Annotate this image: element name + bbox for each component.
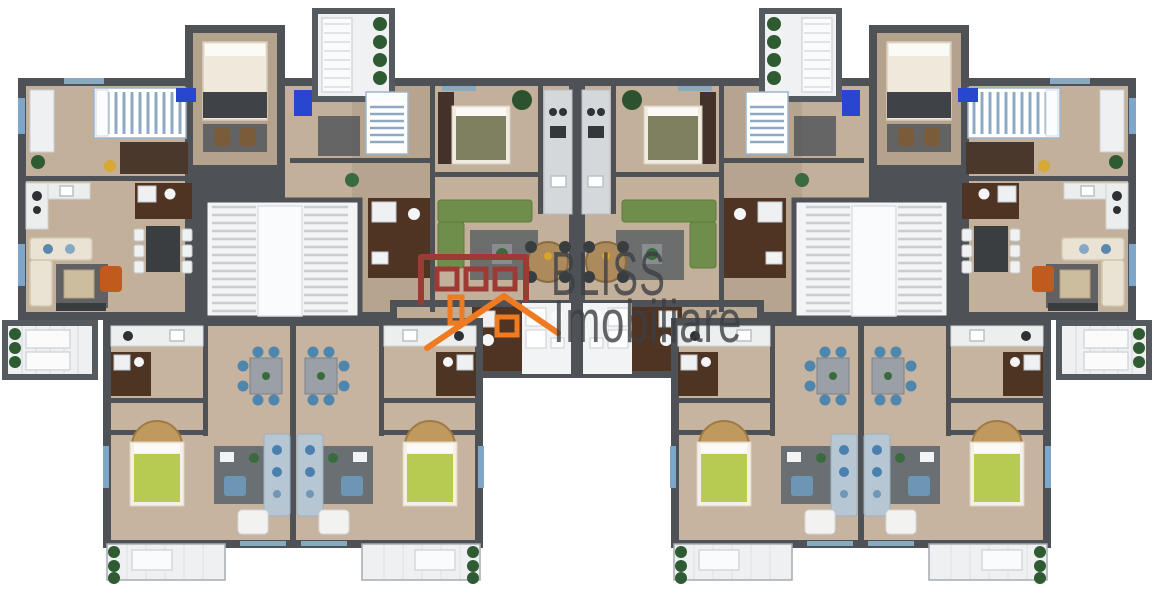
kitchen-sink bbox=[403, 330, 417, 341]
cooktop bbox=[454, 331, 464, 341]
kitchen-sink bbox=[551, 176, 566, 187]
wall-lower-h bbox=[678, 398, 770, 403]
dining-chair-blue bbox=[269, 395, 280, 406]
plant bbox=[675, 546, 687, 558]
bed-blanket-dark bbox=[203, 92, 267, 118]
window-glass bbox=[678, 86, 712, 91]
sofa-pillow bbox=[872, 445, 882, 455]
stool-yellow bbox=[104, 160, 116, 172]
plant bbox=[373, 71, 387, 85]
dining-chair-blue bbox=[269, 347, 280, 358]
armchair-white bbox=[319, 510, 349, 534]
toilet bbox=[482, 334, 494, 346]
stool-yellow bbox=[1038, 160, 1050, 172]
chair-blue bbox=[791, 476, 813, 496]
bed-pillows bbox=[889, 44, 949, 56]
lounger bbox=[132, 550, 172, 570]
laptop bbox=[787, 452, 801, 462]
dining-chair bbox=[182, 229, 192, 241]
dining-chair bbox=[962, 261, 972, 273]
toilet bbox=[408, 208, 420, 220]
cooktop bbox=[587, 108, 595, 116]
window-glass bbox=[1129, 244, 1136, 286]
plant bbox=[1034, 546, 1046, 558]
plant bbox=[767, 71, 781, 85]
bed-pillow bbox=[368, 94, 406, 102]
cabinet-blue bbox=[958, 88, 978, 102]
wall-kitchen-v bbox=[611, 86, 616, 214]
lounger bbox=[982, 550, 1022, 570]
window-glass bbox=[670, 446, 676, 488]
wall-lower-col bbox=[379, 326, 384, 436]
window-glass bbox=[442, 86, 476, 91]
bed-pillow bbox=[748, 94, 786, 102]
dining-chair-blue bbox=[820, 395, 831, 406]
dining-chair-blue bbox=[238, 361, 249, 372]
window-glass bbox=[103, 446, 109, 488]
cooktop bbox=[1021, 331, 1031, 341]
dining-chair-blue bbox=[875, 347, 886, 358]
sofa-green bbox=[622, 200, 716, 222]
sofa-pillow-blue bbox=[65, 244, 75, 254]
plant bbox=[373, 35, 387, 49]
plant bbox=[1034, 560, 1046, 572]
bed-pillows bbox=[205, 44, 265, 56]
plant bbox=[345, 173, 359, 187]
bed-pillows bbox=[407, 444, 453, 453]
window-glass bbox=[1045, 446, 1051, 488]
kitchen-sink bbox=[588, 176, 603, 187]
dining-chair-blue bbox=[805, 381, 816, 392]
kitchen-sink bbox=[1081, 186, 1094, 196]
sofa-cream bbox=[1102, 260, 1124, 306]
bed-pillows bbox=[456, 108, 506, 116]
dining-chair-blue bbox=[836, 347, 847, 358]
sink bbox=[372, 252, 388, 264]
toilet bbox=[1010, 357, 1020, 367]
dining-chair bbox=[962, 229, 972, 241]
dining-table bbox=[974, 226, 1008, 272]
kitchen-counter-long bbox=[582, 90, 610, 214]
lounger bbox=[1084, 352, 1128, 370]
dining-chair-blue bbox=[339, 381, 350, 392]
kitchen-sink bbox=[970, 330, 984, 341]
bed-striped-small-stripes bbox=[370, 100, 404, 142]
dining-chair-blue bbox=[891, 395, 902, 406]
wall-center-apt-v bbox=[719, 86, 724, 312]
wardrobe-blue bbox=[842, 90, 860, 116]
plant bbox=[373, 17, 387, 31]
wall-small-bedroom bbox=[722, 158, 864, 163]
toilet bbox=[165, 189, 176, 200]
bed-lime-duvet bbox=[407, 454, 453, 502]
plant bbox=[767, 17, 781, 31]
bed-pillows bbox=[648, 108, 698, 116]
sofa-green bbox=[690, 222, 716, 268]
plant bbox=[467, 546, 479, 558]
plant bbox=[1133, 328, 1145, 340]
window-glass bbox=[18, 98, 25, 134]
cooktop bbox=[33, 206, 41, 214]
bed-pillows bbox=[701, 444, 747, 453]
shower bbox=[114, 355, 130, 370]
plant bbox=[622, 90, 642, 110]
plant bbox=[1109, 155, 1123, 169]
dining-chair bbox=[182, 245, 192, 257]
sofa-pillow-blue bbox=[1101, 244, 1111, 254]
lounger bbox=[699, 550, 739, 570]
dining-table bbox=[146, 226, 180, 272]
plant bbox=[1133, 342, 1145, 354]
plant bbox=[9, 342, 21, 354]
plant bbox=[675, 560, 687, 572]
lounger bbox=[802, 18, 832, 92]
wall-kitchen-v bbox=[538, 86, 543, 214]
plant bbox=[767, 53, 781, 67]
bed-pillow bbox=[1046, 90, 1058, 136]
shower bbox=[372, 202, 396, 222]
wall-lower-col bbox=[203, 326, 208, 436]
toilet bbox=[443, 357, 453, 367]
sofa-pillow bbox=[839, 467, 849, 477]
floorplan-stage: BLISS Imobiliare bbox=[0, 0, 1154, 600]
cooktop bbox=[549, 108, 557, 116]
rug bbox=[203, 124, 267, 152]
lounger bbox=[1084, 330, 1128, 348]
plant bbox=[467, 572, 479, 584]
plant bbox=[31, 155, 45, 169]
plant bbox=[675, 572, 687, 584]
cooktop bbox=[559, 108, 567, 116]
wall-lower-h bbox=[951, 398, 1043, 403]
sink bbox=[766, 252, 782, 264]
wall-lower-h bbox=[384, 398, 476, 403]
plant bbox=[249, 453, 259, 463]
dining-chair bbox=[962, 245, 972, 257]
plant bbox=[328, 453, 338, 463]
window-glass bbox=[1129, 98, 1136, 134]
wall-center-apt-h bbox=[435, 172, 540, 177]
bed-lime-duvet bbox=[701, 454, 747, 502]
dining-chair-blue bbox=[906, 361, 917, 372]
balcony-door-glass bbox=[807, 541, 853, 546]
dining-chair-blue bbox=[324, 395, 335, 406]
wall-lower-col bbox=[770, 326, 775, 436]
dining-chair-blue bbox=[324, 347, 335, 358]
dining-chair-blue bbox=[308, 395, 319, 406]
bed-blanket-dark bbox=[887, 92, 951, 118]
dining-chair bbox=[134, 229, 144, 241]
plant bbox=[512, 90, 532, 110]
sofa-pillow bbox=[272, 445, 282, 455]
plant bbox=[1034, 572, 1046, 584]
dining-chair bbox=[1010, 229, 1020, 241]
wall-bedroom-left bbox=[26, 176, 186, 181]
sofa-pillow bbox=[872, 467, 882, 477]
plant bbox=[9, 356, 21, 368]
dining-chair-blue bbox=[891, 347, 902, 358]
balcony-door-glass bbox=[301, 541, 347, 546]
coffee-table bbox=[1060, 270, 1090, 298]
plant bbox=[108, 560, 120, 572]
dining-chair-dark bbox=[525, 241, 537, 253]
cooktop bbox=[1113, 206, 1121, 214]
dining-chair bbox=[1010, 261, 1020, 273]
oven bbox=[588, 126, 604, 138]
tv-console bbox=[1048, 303, 1098, 311]
stair-landing bbox=[852, 206, 896, 316]
dining-chair-blue bbox=[253, 395, 264, 406]
plant bbox=[373, 53, 387, 67]
closet-white bbox=[1100, 90, 1124, 152]
balcony-door-glass bbox=[240, 541, 286, 546]
shower bbox=[138, 186, 156, 202]
kitchen-sink bbox=[170, 330, 184, 341]
wardrobe-blue bbox=[294, 90, 312, 116]
dining-chair-blue bbox=[308, 347, 319, 358]
kitchen-counter-long bbox=[544, 90, 572, 214]
window-glass bbox=[1050, 78, 1090, 84]
sofa-cream bbox=[30, 260, 52, 306]
sofa-pillow bbox=[305, 445, 315, 455]
oven bbox=[550, 126, 566, 138]
dining-chair-blue bbox=[805, 361, 816, 372]
dining-chair-blue bbox=[906, 381, 917, 392]
wall-center-apt-h bbox=[614, 172, 719, 177]
sofa-cream bbox=[1062, 238, 1124, 260]
sofa-pillow bbox=[306, 490, 314, 498]
armchair-brown bbox=[898, 128, 914, 146]
dining-chair-blue bbox=[339, 361, 350, 372]
armchair-brown bbox=[240, 128, 256, 146]
lounger bbox=[26, 352, 70, 370]
chair-blue bbox=[341, 476, 363, 496]
laptop bbox=[353, 452, 367, 462]
dining-chair-blue bbox=[238, 381, 249, 392]
bed-pillow bbox=[96, 90, 108, 136]
bed-pillows bbox=[974, 444, 1020, 453]
toilet bbox=[134, 357, 144, 367]
tv-console bbox=[56, 303, 106, 311]
plant bbox=[767, 35, 781, 49]
shower bbox=[1024, 355, 1040, 370]
plant bbox=[262, 372, 270, 380]
plant bbox=[895, 453, 905, 463]
window-glass bbox=[64, 78, 104, 84]
plant bbox=[1133, 356, 1145, 368]
lounger bbox=[322, 18, 352, 92]
lower-mid-wall bbox=[858, 326, 864, 540]
armchair-white bbox=[886, 510, 916, 534]
window-glass bbox=[18, 244, 25, 286]
shower bbox=[758, 202, 782, 222]
bed-lime-duvet bbox=[134, 454, 180, 502]
rug bbox=[794, 116, 836, 156]
dining-chair-blue bbox=[836, 395, 847, 406]
coffee-table bbox=[64, 270, 94, 298]
rug bbox=[318, 116, 360, 156]
rug bbox=[887, 124, 951, 152]
wall-center-apt-v bbox=[430, 86, 435, 312]
plant bbox=[829, 372, 837, 380]
toilet bbox=[734, 208, 746, 220]
wall-bedroom-left bbox=[968, 176, 1128, 181]
dining-chair bbox=[1010, 245, 1020, 257]
armchair-orange bbox=[100, 266, 122, 292]
bed-olive-duvet bbox=[456, 116, 506, 160]
sofa-green bbox=[438, 200, 532, 222]
sofa-pillow bbox=[305, 467, 315, 477]
toilet bbox=[979, 189, 990, 200]
wall-small-bedroom bbox=[290, 158, 432, 163]
shower bbox=[681, 355, 697, 370]
dining-chair-blue bbox=[875, 395, 886, 406]
bed-striped-small-stripes bbox=[750, 100, 784, 142]
lounger bbox=[415, 550, 455, 570]
watermark-sub: Imobiliare bbox=[553, 292, 742, 352]
sofa-pillow bbox=[840, 490, 848, 498]
wardrobe-dark bbox=[120, 142, 188, 174]
sofa-pillow-blue bbox=[43, 244, 53, 254]
sofa-pillow-blue bbox=[1079, 244, 1089, 254]
laptop bbox=[220, 452, 234, 462]
lower-mid-wall bbox=[290, 326, 296, 540]
plant bbox=[317, 372, 325, 380]
plant bbox=[795, 173, 809, 187]
cooktop bbox=[1112, 191, 1122, 201]
sofa-pillow bbox=[873, 490, 881, 498]
bed-lime-duvet bbox=[974, 454, 1020, 502]
dining-chair bbox=[134, 245, 144, 257]
sofa-green bbox=[438, 222, 464, 268]
window-glass bbox=[478, 446, 484, 488]
chair-blue bbox=[224, 476, 246, 496]
armchair-white bbox=[238, 510, 268, 534]
armchair-brown bbox=[214, 128, 230, 146]
closet-white bbox=[30, 90, 54, 152]
cooktop bbox=[123, 331, 133, 341]
sofa-cream bbox=[30, 238, 92, 260]
dining-chair bbox=[134, 261, 144, 273]
plant bbox=[108, 546, 120, 558]
wall-lower-col bbox=[946, 326, 951, 436]
shower bbox=[998, 186, 1016, 202]
cooktop bbox=[32, 191, 42, 201]
dining-chair-blue bbox=[253, 347, 264, 358]
armchair-brown bbox=[924, 128, 940, 146]
cooktop bbox=[597, 108, 605, 116]
sofa-pillow bbox=[273, 490, 281, 498]
balcony-door-glass bbox=[868, 541, 914, 546]
plant bbox=[467, 560, 479, 572]
dining-chair-blue bbox=[820, 347, 831, 358]
lounger bbox=[26, 330, 70, 348]
plant bbox=[884, 372, 892, 380]
shower bbox=[526, 330, 546, 348]
wall-lower-h bbox=[111, 398, 203, 403]
kitchen-sink bbox=[60, 186, 73, 196]
plant bbox=[108, 572, 120, 584]
shower bbox=[457, 355, 473, 370]
plant bbox=[816, 453, 826, 463]
bed-pillows bbox=[134, 444, 180, 453]
dining-chair bbox=[182, 261, 192, 273]
laptop bbox=[920, 452, 934, 462]
sofa-pillow bbox=[839, 445, 849, 455]
toilet bbox=[701, 357, 711, 367]
chair-blue bbox=[908, 476, 930, 496]
wardrobe-dark bbox=[966, 142, 1034, 174]
sofa-pillow bbox=[272, 467, 282, 477]
plant bbox=[9, 328, 21, 340]
stair-landing bbox=[258, 206, 302, 316]
armchair-white bbox=[805, 510, 835, 534]
bed-olive-duvet bbox=[648, 116, 698, 160]
cabinet-blue bbox=[176, 88, 196, 102]
armchair-orange bbox=[1032, 266, 1054, 292]
